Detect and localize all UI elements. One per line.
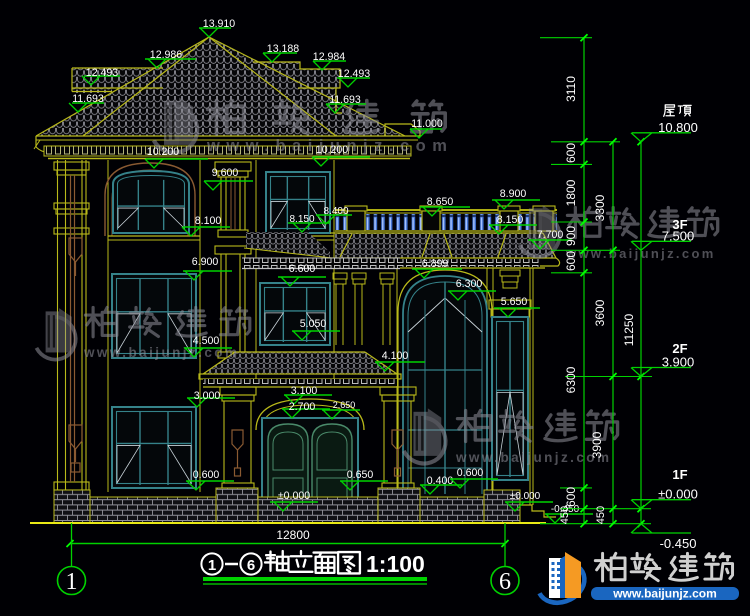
svg-text:1: 1: [66, 569, 78, 595]
svg-text:www.baijunjz.com: www.baijunjz.com: [455, 450, 611, 465]
svg-text:5.050: 5.050: [300, 318, 327, 330]
svg-text:2.700: 2.700: [289, 401, 316, 413]
svg-text:8.100: 8.100: [195, 215, 222, 227]
svg-text:1800: 1800: [564, 179, 578, 206]
svg-text:6.900: 6.900: [192, 256, 219, 268]
svg-text:3900: 3900: [590, 431, 604, 458]
svg-text:6.600: 6.600: [289, 263, 316, 275]
svg-text:6: 6: [499, 569, 511, 595]
svg-text:11.693: 11.693: [72, 93, 104, 105]
svg-text:6.300: 6.300: [456, 278, 483, 290]
svg-text:12.984: 12.984: [313, 51, 346, 63]
svg-text:10.800: 10.800: [658, 120, 698, 135]
svg-text:12.493: 12.493: [86, 67, 119, 79]
svg-text:8.900: 8.900: [500, 188, 527, 200]
svg-text:5.650: 5.650: [501, 296, 528, 308]
svg-text:600: 600: [564, 143, 578, 163]
svg-text:13.910: 13.910: [203, 18, 236, 30]
svg-text:600: 600: [564, 487, 578, 507]
svg-text:3.900: 3.900: [662, 355, 695, 370]
svg-text:2.650: 2.650: [333, 400, 356, 410]
svg-text:4.500: 4.500: [193, 335, 220, 347]
svg-text:8.150: 8.150: [497, 214, 524, 226]
svg-text:www.baijunjz.com: www.baijunjz.com: [83, 345, 239, 360]
svg-text:600: 600: [564, 251, 578, 271]
svg-text:www.baijunjz.com: www.baijunjz.com: [565, 246, 716, 261]
svg-text:3110: 3110: [564, 76, 578, 102]
svg-text:450: 450: [595, 506, 607, 524]
svg-text:8.650: 8.650: [427, 196, 454, 208]
svg-text:±0.000: ±0.000: [510, 491, 541, 502]
svg-text:3600: 3600: [593, 299, 607, 326]
svg-text:6300: 6300: [564, 366, 578, 393]
svg-text:1: 1: [208, 557, 216, 574]
svg-text:±0.000: ±0.000: [278, 490, 310, 502]
svg-text:11250: 11250: [622, 313, 636, 346]
svg-text:6: 6: [247, 557, 255, 574]
svg-text:900: 900: [564, 226, 578, 246]
svg-text:±0.000: ±0.000: [658, 487, 698, 502]
svg-text:10.200: 10.200: [147, 146, 180, 158]
svg-text:3.100: 3.100: [291, 385, 318, 397]
svg-text:8.400: 8.400: [323, 206, 348, 217]
svg-text:0.600: 0.600: [193, 469, 220, 481]
svg-text:3300: 3300: [593, 194, 607, 221]
svg-text:12.493: 12.493: [338, 68, 371, 80]
svg-text:0.650: 0.650: [347, 469, 374, 481]
svg-text:9.600: 9.600: [212, 167, 239, 179]
svg-text:11.693: 11.693: [329, 94, 361, 106]
svg-text:11.000: 11.000: [411, 118, 443, 130]
svg-text:1:100: 1:100: [366, 551, 425, 577]
svg-text:2F: 2F: [672, 341, 687, 356]
svg-text:6.899: 6.899: [422, 258, 449, 270]
svg-text:1F: 1F: [672, 467, 687, 482]
svg-text:12800: 12800: [276, 528, 310, 542]
svg-text:10.200: 10.200: [316, 144, 349, 156]
svg-text:0.400: 0.400: [427, 475, 454, 487]
svg-text:3F: 3F: [672, 217, 687, 232]
svg-text:3.000: 3.000: [194, 390, 221, 402]
svg-text:0.600: 0.600: [457, 467, 484, 479]
svg-text:8.150: 8.150: [289, 214, 314, 225]
svg-text:4.100: 4.100: [382, 350, 409, 362]
svg-text:13.188: 13.188: [267, 43, 300, 55]
svg-text:12.986: 12.986: [150, 49, 183, 61]
svg-text:-0.450: -0.450: [660, 536, 697, 551]
svg-text:450: 450: [559, 506, 571, 524]
svg-text:www.baijunjz.com: www.baijunjz.com: [612, 587, 717, 601]
svg-text:7.700: 7.700: [537, 229, 564, 241]
